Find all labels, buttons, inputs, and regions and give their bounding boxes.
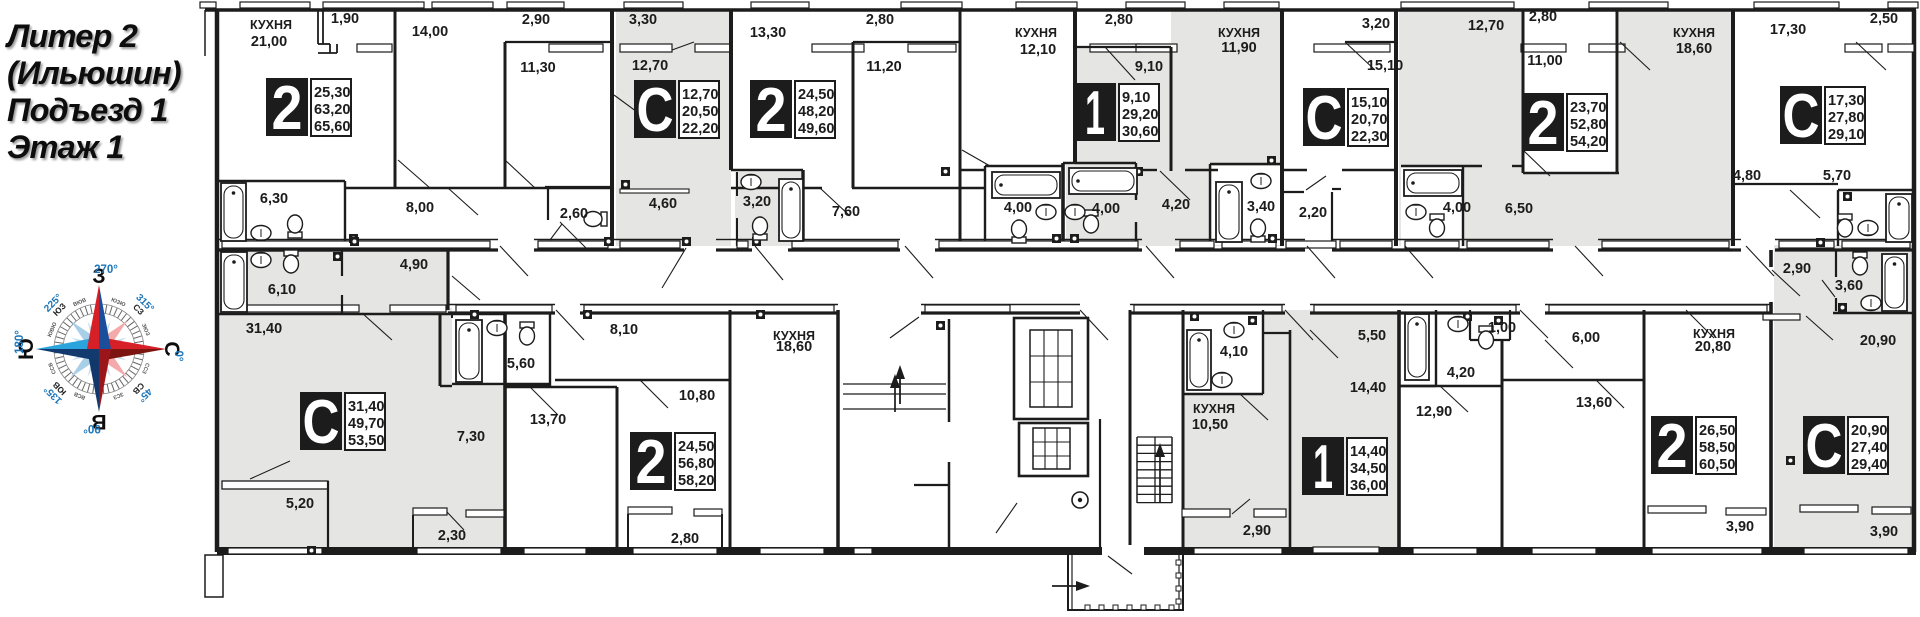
svg-text:1,90: 1,90 — [331, 11, 359, 27]
svg-text:6,30: 6,30 — [260, 191, 288, 207]
svg-text:1: 1 — [1313, 433, 1333, 502]
svg-text:2,20: 2,20 — [1299, 205, 1327, 221]
svg-text:1,00: 1,00 — [1488, 320, 1516, 336]
svg-text:12,70: 12,70 — [632, 58, 668, 74]
svg-text:2: 2 — [1528, 89, 1559, 158]
svg-text:12,70: 12,70 — [682, 87, 719, 103]
svg-text:11,30: 11,30 — [520, 60, 556, 76]
svg-text:6,10: 6,10 — [268, 282, 296, 298]
svg-text:С: С — [637, 76, 674, 145]
svg-text:Литер 2: Литер 2 — [5, 18, 138, 54]
svg-text:10,50: 10,50 — [1192, 417, 1228, 433]
svg-text:49,60: 49,60 — [798, 121, 835, 137]
svg-text:8,10: 8,10 — [610, 322, 638, 338]
svg-text:5,20: 5,20 — [286, 496, 314, 512]
svg-text:2: 2 — [636, 428, 667, 497]
svg-text:63,20: 63,20 — [314, 102, 351, 118]
svg-text:Этаж 1: Этаж 1 — [7, 129, 124, 165]
svg-text:3,20: 3,20 — [1362, 16, 1390, 32]
svg-text:56,80: 56,80 — [678, 456, 715, 472]
svg-text:КУХНЯ: КУХНЯ — [1193, 402, 1235, 416]
svg-text:48,20: 48,20 — [798, 104, 835, 120]
svg-text:(Ильюшин): (Ильюшин) — [7, 55, 181, 91]
svg-text:Подъезд 1: Подъезд 1 — [7, 92, 168, 128]
svg-text:29,40: 29,40 — [1851, 457, 1888, 473]
svg-text:22,20: 22,20 — [682, 121, 719, 137]
svg-text:13,60: 13,60 — [1576, 395, 1612, 411]
svg-text:270°: 270° — [94, 264, 118, 276]
svg-text:7,60: 7,60 — [832, 204, 860, 220]
svg-text:2,90: 2,90 — [1783, 261, 1811, 277]
svg-text:2,80: 2,80 — [1529, 9, 1557, 25]
svg-text:2,80: 2,80 — [866, 12, 894, 28]
svg-text:3,20: 3,20 — [743, 194, 771, 210]
svg-text:11,20: 11,20 — [866, 59, 902, 75]
svg-text:58,50: 58,50 — [1699, 440, 1736, 456]
svg-text:18,60: 18,60 — [776, 339, 812, 355]
svg-text:9,10: 9,10 — [1135, 59, 1163, 75]
svg-text:2: 2 — [272, 74, 303, 143]
svg-text:0°: 0° — [172, 351, 184, 362]
svg-text:27,40: 27,40 — [1851, 440, 1888, 456]
svg-text:С: С — [1806, 412, 1843, 481]
svg-text:3,40: 3,40 — [1247, 199, 1275, 215]
svg-text:20,50: 20,50 — [682, 104, 719, 120]
svg-text:17,30: 17,30 — [1828, 93, 1865, 109]
svg-text:4,00: 4,00 — [1004, 200, 1032, 216]
svg-text:12,90: 12,90 — [1416, 404, 1452, 420]
svg-text:6,00: 6,00 — [1572, 330, 1600, 346]
svg-text:КУХНЯ: КУХНЯ — [250, 18, 292, 32]
svg-text:65,60: 65,60 — [314, 119, 351, 135]
svg-text:8,00: 8,00 — [406, 200, 434, 216]
svg-text:12,70: 12,70 — [1468, 18, 1504, 34]
svg-text:15,10: 15,10 — [1367, 58, 1403, 74]
svg-text:4,60: 4,60 — [649, 196, 677, 212]
svg-text:5,50: 5,50 — [1358, 328, 1386, 344]
svg-text:15,10: 15,10 — [1351, 95, 1388, 111]
svg-text:4,10: 4,10 — [1220, 344, 1248, 360]
svg-text:4,00: 4,00 — [1092, 201, 1120, 217]
svg-text:24,50: 24,50 — [678, 439, 715, 455]
svg-text:7,30: 7,30 — [457, 429, 485, 445]
svg-text:14,40: 14,40 — [1350, 444, 1387, 460]
svg-text:30,60: 30,60 — [1122, 124, 1159, 140]
svg-text:21,00: 21,00 — [251, 34, 287, 50]
svg-text:180°: 180° — [14, 330, 26, 354]
svg-text:3,30: 3,30 — [629, 12, 657, 28]
svg-text:4,00: 4,00 — [1443, 200, 1471, 216]
svg-text:2,50: 2,50 — [1870, 11, 1898, 27]
svg-text:14,00: 14,00 — [412, 24, 448, 40]
svg-text:53,50: 53,50 — [348, 433, 385, 449]
svg-text:49,70: 49,70 — [348, 416, 385, 432]
svg-text:9,10: 9,10 — [1122, 90, 1150, 106]
svg-text:2,80: 2,80 — [671, 531, 699, 547]
svg-text:2,80: 2,80 — [1105, 12, 1133, 28]
svg-text:С: С — [1783, 82, 1820, 151]
svg-text:29,10: 29,10 — [1828, 127, 1865, 143]
svg-text:22,30: 22,30 — [1351, 129, 1388, 145]
svg-text:1: 1 — [1085, 79, 1105, 148]
svg-text:КУХНЯ: КУХНЯ — [1015, 26, 1057, 40]
svg-text:2: 2 — [756, 76, 787, 145]
svg-text:36,00: 36,00 — [1350, 478, 1387, 494]
svg-text:24,50: 24,50 — [798, 87, 835, 103]
svg-text:18,60: 18,60 — [1676, 41, 1712, 57]
svg-text:2: 2 — [1657, 412, 1688, 481]
svg-text:4,90: 4,90 — [400, 257, 428, 273]
svg-text:6,50: 6,50 — [1505, 201, 1533, 217]
svg-text:23,70: 23,70 — [1570, 100, 1607, 116]
svg-text:31,40: 31,40 — [348, 399, 385, 415]
svg-text:90°: 90° — [83, 422, 101, 434]
svg-text:2,30: 2,30 — [438, 528, 466, 544]
svg-text:2,90: 2,90 — [1243, 523, 1271, 539]
svg-text:2,90: 2,90 — [522, 12, 550, 28]
svg-text:26,50: 26,50 — [1699, 423, 1736, 439]
svg-text:17,30: 17,30 — [1770, 22, 1806, 38]
svg-text:25,30: 25,30 — [314, 85, 351, 101]
svg-text:5,70: 5,70 — [1823, 168, 1851, 184]
svg-text:С: С — [303, 388, 340, 457]
svg-text:34,50: 34,50 — [1350, 461, 1387, 477]
svg-text:3,90: 3,90 — [1726, 519, 1754, 535]
svg-text:58,20: 58,20 — [678, 473, 715, 489]
svg-text:31,40: 31,40 — [246, 321, 282, 337]
svg-text:20,70: 20,70 — [1351, 112, 1388, 128]
svg-text:2,60: 2,60 — [560, 206, 588, 222]
svg-text:С: С — [1306, 84, 1343, 153]
svg-text:20,90: 20,90 — [1860, 333, 1896, 349]
svg-text:4,80: 4,80 — [1733, 168, 1761, 184]
svg-text:13,30: 13,30 — [750, 25, 786, 41]
svg-text:КУХНЯ: КУХНЯ — [1218, 26, 1260, 40]
svg-text:60,50: 60,50 — [1699, 457, 1736, 473]
svg-text:52,80: 52,80 — [1570, 117, 1607, 133]
svg-text:4,20: 4,20 — [1447, 365, 1475, 381]
svg-text:20,80: 20,80 — [1695, 339, 1731, 355]
svg-text:11,00: 11,00 — [1527, 53, 1563, 69]
svg-text:10,80: 10,80 — [679, 388, 715, 404]
svg-text:13,70: 13,70 — [530, 412, 566, 428]
svg-text:54,20: 54,20 — [1570, 134, 1607, 150]
svg-text:27,80: 27,80 — [1828, 110, 1865, 126]
svg-text:12,10: 12,10 — [1020, 42, 1056, 58]
svg-text:29,20: 29,20 — [1122, 107, 1159, 123]
svg-text:4,20: 4,20 — [1162, 197, 1190, 213]
svg-text:3,60: 3,60 — [1835, 278, 1863, 294]
svg-text:3,90: 3,90 — [1870, 524, 1898, 540]
svg-text:14,40: 14,40 — [1350, 380, 1386, 396]
svg-text:5,60: 5,60 — [507, 356, 535, 372]
svg-text:КУХНЯ: КУХНЯ — [1673, 26, 1715, 40]
svg-text:11,90: 11,90 — [1221, 40, 1257, 56]
svg-text:20,90: 20,90 — [1851, 423, 1888, 439]
